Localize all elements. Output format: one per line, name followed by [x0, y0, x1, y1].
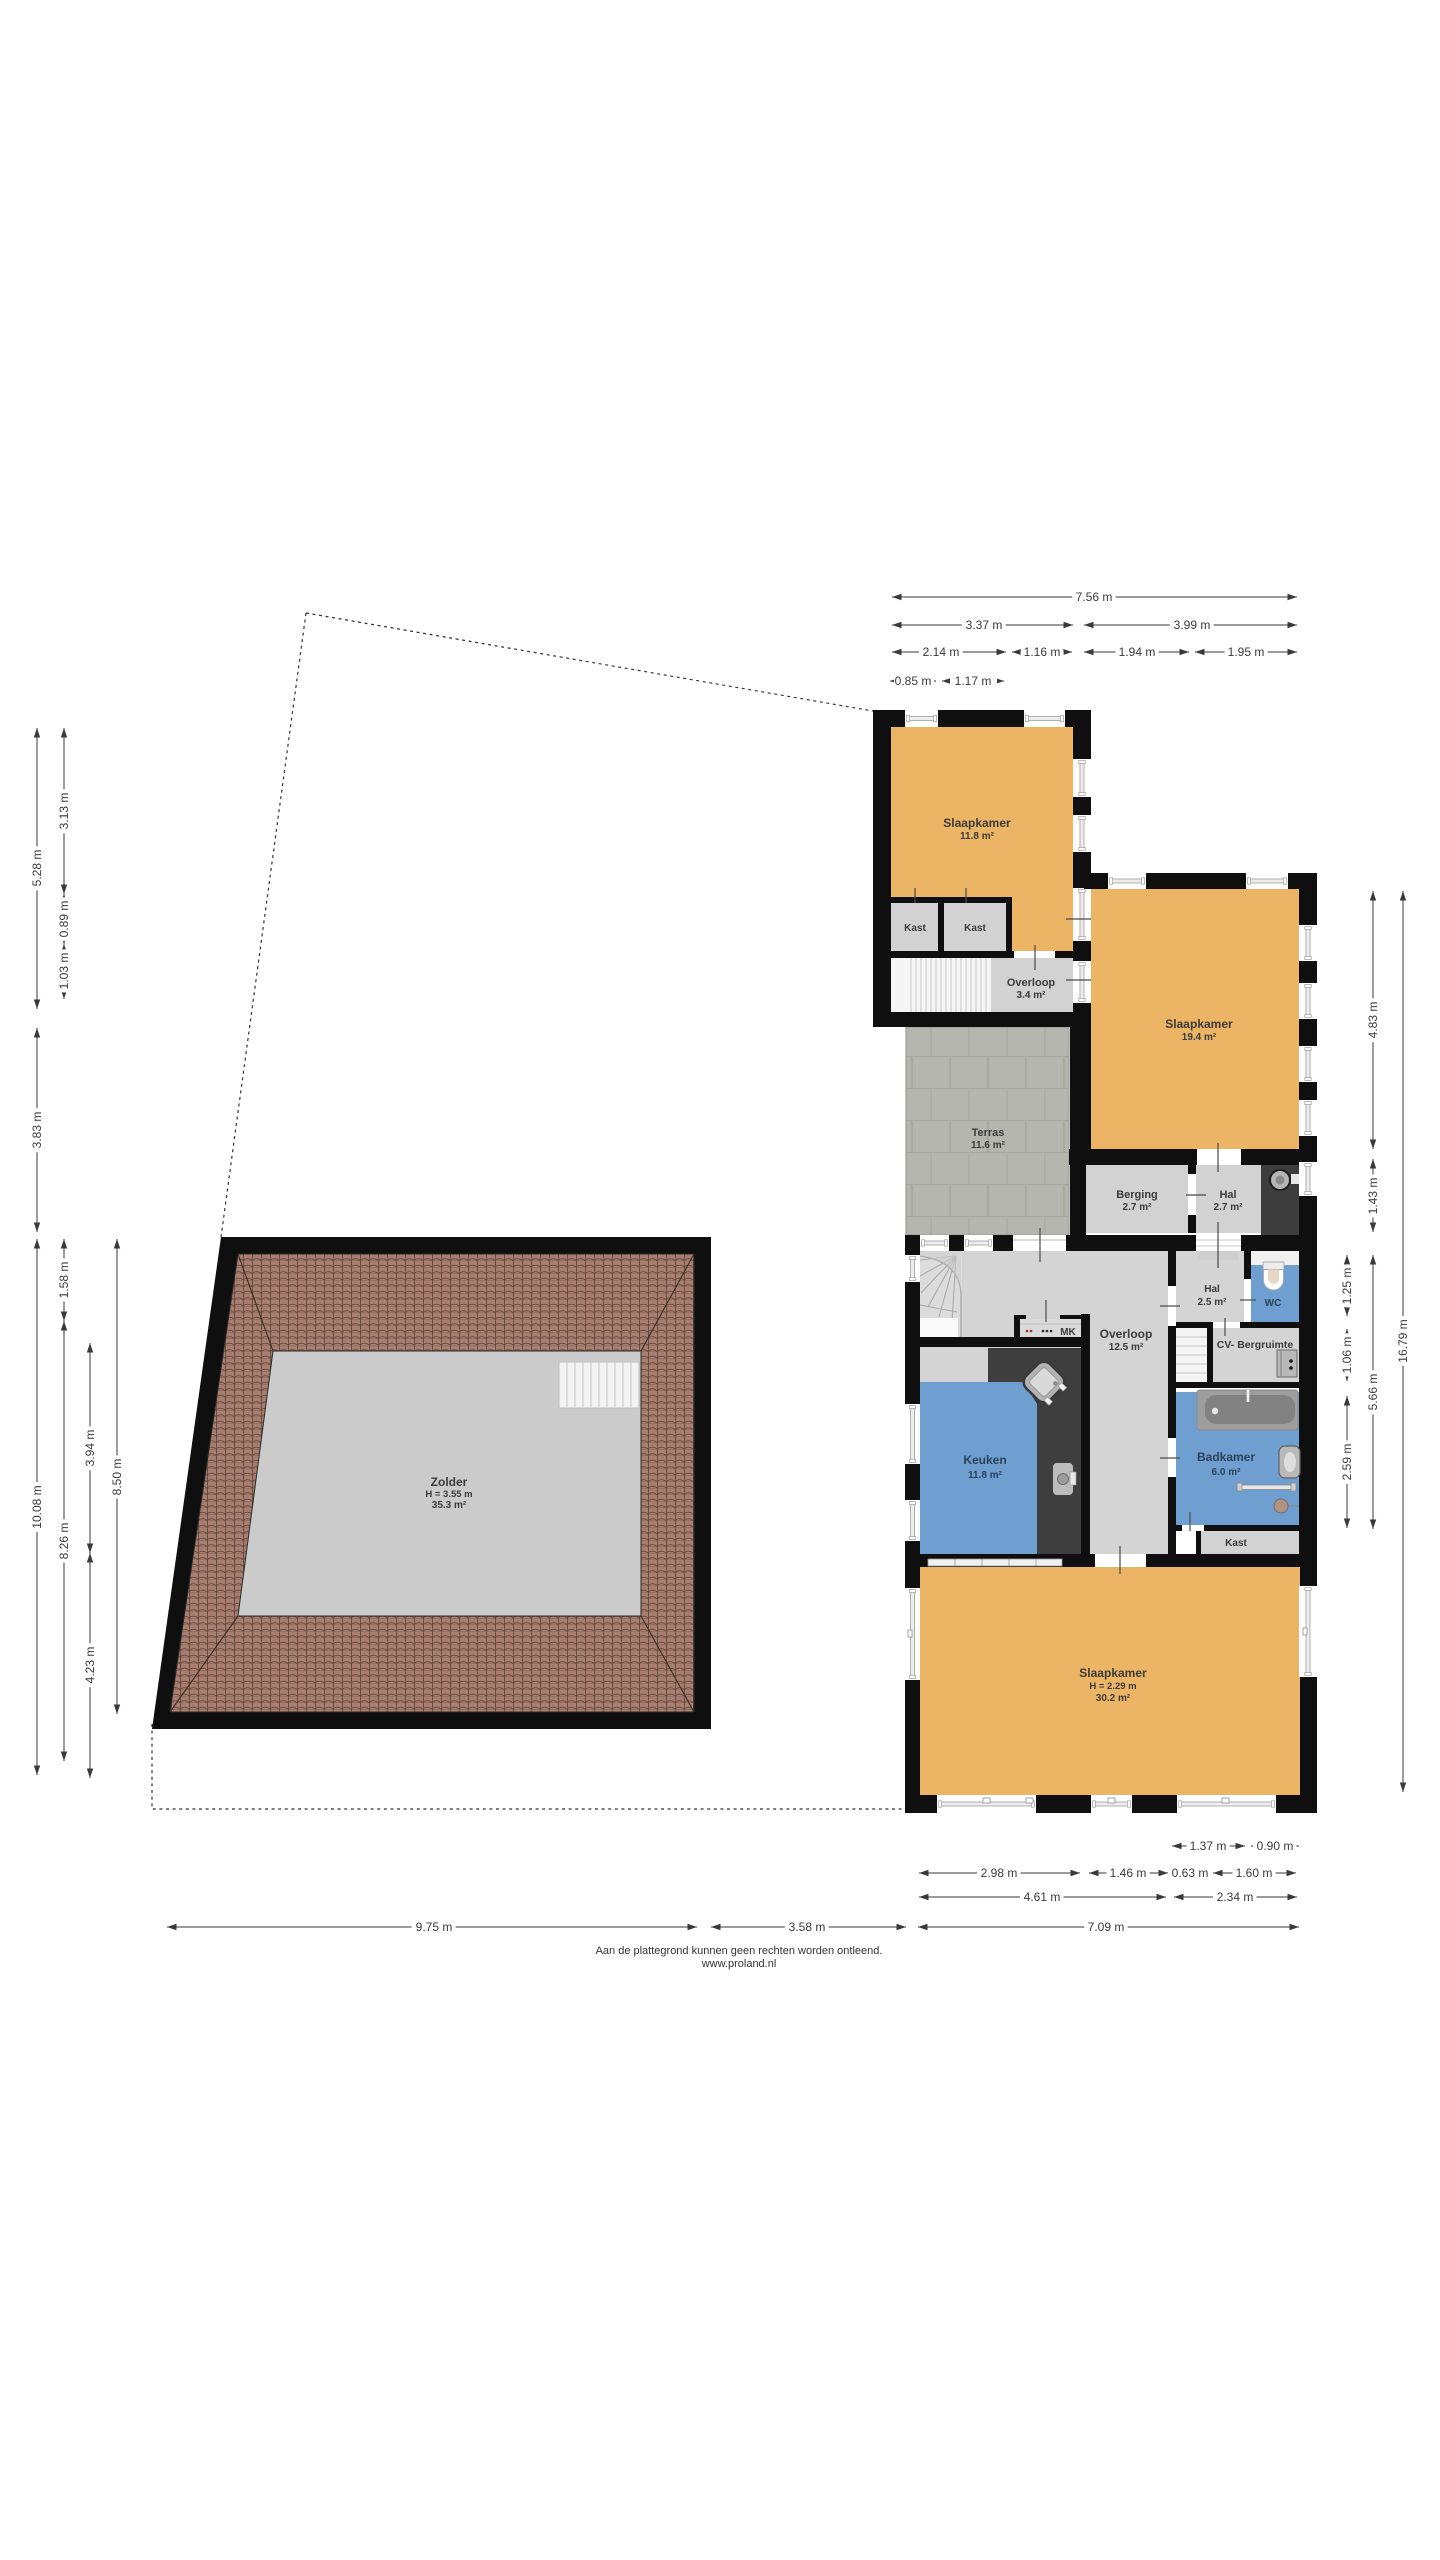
svg-text:Badkamer: Badkamer: [1197, 1450, 1255, 1464]
svg-text:6.0 m²: 6.0 m²: [1212, 1467, 1242, 1478]
svg-text:11.8 m²: 11.8 m²: [960, 831, 995, 842]
svg-text:3.37 m: 3.37 m: [966, 618, 1003, 632]
svg-text:Overloop: Overloop: [1007, 977, 1056, 989]
svg-text:1.58 m: 1.58 m: [57, 1262, 71, 1299]
svg-text:Aan de plattegrond kunnen geen: Aan de plattegrond kunnen geen rechten w…: [596, 1945, 883, 1957]
svg-text:Slaapkamer: Slaapkamer: [943, 816, 1011, 830]
svg-text:0.85 m: 0.85 m: [895, 674, 932, 688]
svg-text:8.50 m: 8.50 m: [110, 1459, 124, 1496]
svg-text:1.43 m: 1.43 m: [1366, 1178, 1380, 1215]
svg-text:1.46 m: 1.46 m: [1110, 1866, 1147, 1880]
svg-text:3.83 m: 3.83 m: [30, 1112, 44, 1149]
svg-text:Kast: Kast: [1225, 1538, 1247, 1549]
svg-text:11.6 m²: 11.6 m²: [971, 1140, 1006, 1151]
svg-text:WC: WC: [1265, 1298, 1282, 1309]
svg-text:www.proland.nl: www.proland.nl: [701, 1958, 777, 1970]
svg-text:Hal: Hal: [1219, 1189, 1236, 1201]
svg-text:5.28 m: 5.28 m: [30, 850, 44, 887]
svg-text:3.13 m: 3.13 m: [57, 793, 71, 830]
svg-text:Kast: Kast: [964, 923, 986, 934]
svg-text:Terras: Terras: [972, 1127, 1005, 1139]
svg-text:3.58 m: 3.58 m: [789, 1920, 826, 1934]
svg-text:CV- Bergruimte: CV- Bergruimte: [1217, 1339, 1294, 1351]
svg-text:1.60 m: 1.60 m: [1236, 1866, 1273, 1880]
svg-text:10.08 m: 10.08 m: [30, 1485, 44, 1528]
svg-text:2.59 m: 2.59 m: [1340, 1444, 1354, 1481]
svg-text:0.89 m: 0.89 m: [57, 901, 71, 938]
svg-text:3.94 m: 3.94 m: [83, 1430, 97, 1467]
svg-text:2.7 m²: 2.7 m²: [1214, 1202, 1244, 1213]
svg-text:0.90 m: 0.90 m: [1257, 1839, 1294, 1853]
svg-text:Overloop: Overloop: [1100, 1327, 1153, 1341]
svg-text:MK: MK: [1060, 1327, 1076, 1338]
svg-text:11.8 m²: 11.8 m²: [968, 1470, 1003, 1481]
svg-text:Zolder: Zolder: [431, 1475, 468, 1489]
svg-text:1.16 m: 1.16 m: [1024, 645, 1061, 659]
svg-text:2.98 m: 2.98 m: [981, 1866, 1018, 1880]
svg-text:H = 3.55 m: H = 3.55 m: [425, 1489, 472, 1500]
svg-text:1.25 m: 1.25 m: [1340, 1268, 1354, 1305]
svg-text:3.99 m: 3.99 m: [1174, 618, 1211, 632]
svg-text:3.4 m²: 3.4 m²: [1017, 990, 1047, 1001]
svg-text:4.83 m: 4.83 m: [1366, 1002, 1380, 1039]
svg-text:H = 2.29 m: H = 2.29 m: [1089, 1681, 1136, 1692]
svg-text:16.79 m: 16.79 m: [1396, 1319, 1410, 1362]
svg-text:Kast: Kast: [904, 923, 926, 934]
svg-text:2.14 m: 2.14 m: [923, 645, 960, 659]
svg-text:Slaapkamer: Slaapkamer: [1165, 1017, 1233, 1031]
svg-text:1.37 m: 1.37 m: [1190, 1839, 1227, 1853]
svg-text:19.4 m²: 19.4 m²: [1182, 1032, 1217, 1043]
svg-text:2.5 m²: 2.5 m²: [1198, 1297, 1228, 1308]
svg-text:0.63 m: 0.63 m: [1172, 1866, 1209, 1880]
svg-text:12.5 m²: 12.5 m²: [1109, 1342, 1144, 1353]
svg-text:8.26 m: 8.26 m: [57, 1523, 71, 1560]
svg-text:9.75 m: 9.75 m: [416, 1920, 453, 1934]
svg-text:35.3 m²: 35.3 m²: [432, 1500, 467, 1511]
svg-text:2.34 m: 2.34 m: [1217, 1890, 1254, 1904]
svg-text:4.61 m: 4.61 m: [1024, 1890, 1061, 1904]
svg-text:1.94 m: 1.94 m: [1119, 645, 1156, 659]
svg-text:1.03 m: 1.03 m: [57, 953, 71, 990]
svg-text:Slaapkamer: Slaapkamer: [1079, 1666, 1147, 1680]
svg-text:5.66 m: 5.66 m: [1366, 1374, 1380, 1411]
svg-text:30.2 m²: 30.2 m²: [1096, 1693, 1131, 1704]
svg-text:1.95 m: 1.95 m: [1228, 645, 1265, 659]
svg-text:4.23 m: 4.23 m: [83, 1647, 97, 1684]
svg-text:7.56 m: 7.56 m: [1076, 590, 1113, 604]
svg-text:7.09 m: 7.09 m: [1088, 1920, 1125, 1934]
svg-text:2.7 m²: 2.7 m²: [1123, 1202, 1153, 1213]
svg-text:Berging: Berging: [1116, 1189, 1158, 1201]
svg-text:1.06 m: 1.06 m: [1340, 1337, 1354, 1374]
svg-text:1.17 m: 1.17 m: [955, 674, 992, 688]
svg-text:Hal: Hal: [1204, 1284, 1220, 1295]
svg-text:Keuken: Keuken: [963, 1453, 1006, 1467]
